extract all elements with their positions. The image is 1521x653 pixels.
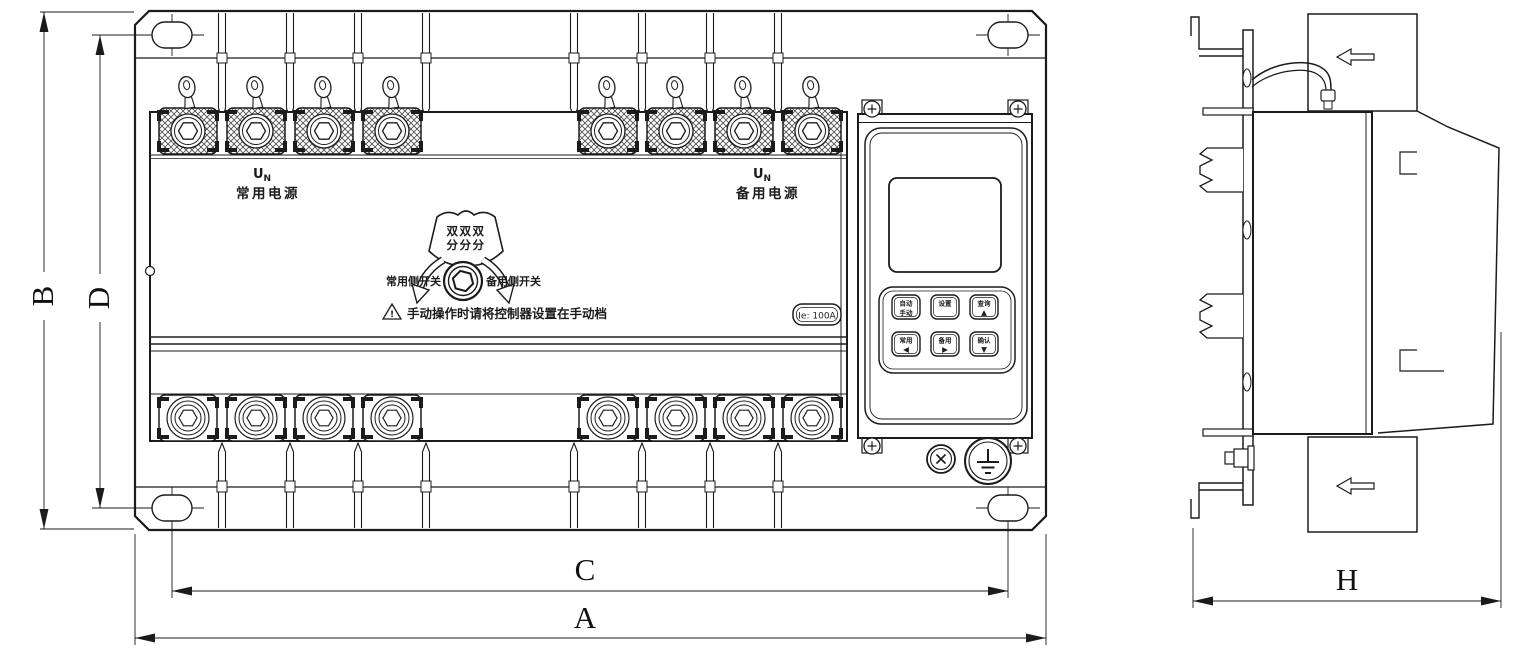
controller-button: 备用▶ <box>931 332 959 356</box>
bracket-bottom-arm <box>1191 483 1243 518</box>
bracket-bump <box>1243 69 1251 87</box>
controller-unit: 自动手动设置查询▲常用◀备用▶确认▼ <box>858 100 1032 484</box>
controller-button-label: ▼ <box>981 345 987 354</box>
mounting-slot <box>152 495 192 521</box>
mounting-slot <box>988 495 1028 521</box>
controller-button-label: 设置 <box>939 299 953 308</box>
mounting-slot <box>152 22 192 48</box>
controller-button: 查询▲ <box>970 295 998 319</box>
busbar-strip <box>639 13 646 119</box>
body-side-pin <box>146 267 155 276</box>
ground-terminal <box>965 438 1011 484</box>
controller-button-label: ◀ <box>903 345 909 354</box>
controller-button: 常用◀ <box>892 332 920 356</box>
mounting-slot <box>988 22 1028 48</box>
plate-edge-bottom <box>1203 429 1253 436</box>
controller-button-label: ▲ <box>981 308 987 317</box>
busbar-strip <box>219 13 226 119</box>
handle-plate-row1: 双双双 <box>446 224 486 238</box>
dim-label-mounting-width: C <box>575 552 596 587</box>
controller-panel <box>865 128 1027 424</box>
warning-text: 手动操作时请将控制器设置在手动档 <box>407 306 607 321</box>
busbar-strip <box>355 13 362 119</box>
busbar-strip <box>423 13 430 119</box>
controller-lcd-screen <box>889 178 1001 272</box>
bracket-top-arm <box>1191 17 1243 49</box>
dim-label-depth: H <box>1336 562 1358 597</box>
din-rail-clips <box>1200 148 1243 338</box>
ats-dimension-drawing: UN 常用电源 UN 备用电源 双双双 分分分 常用侧开 <box>0 0 1521 653</box>
bracket-bump <box>1243 373 1251 391</box>
controller-button-label: 查询 <box>978 299 992 308</box>
warning-mark: ! <box>390 310 394 320</box>
dim-label-overall-height: B <box>25 286 60 307</box>
side-view <box>1191 14 1499 532</box>
mounting-bolt <box>1225 446 1254 470</box>
controller-button-label: 自动 <box>900 299 914 308</box>
din-clip <box>1200 294 1243 338</box>
controller-button: 设置 <box>931 295 959 319</box>
handle-knob <box>444 262 482 300</box>
dim-label-mounting-height: D <box>81 287 116 309</box>
handle-right-switch-label: 备用侧开关 <box>485 274 541 288</box>
warning-note: ! 手动操作时请将控制器设置在手动档 <box>383 304 607 321</box>
dim-label-overall-width: A <box>574 600 597 635</box>
wire-connector <box>1321 90 1335 101</box>
controller-button-label: ▶ <box>942 345 948 354</box>
backup-power-name: 备用电源 <box>735 185 800 202</box>
din-clip <box>1200 148 1243 192</box>
controller-button-label: 常用 <box>900 336 913 345</box>
seal-screw <box>927 445 955 473</box>
controller-button-label: 备用 <box>938 336 952 345</box>
front-cover-profile <box>1378 111 1499 433</box>
busbar-strip <box>287 13 294 119</box>
controller-button-label: 手动 <box>900 308 914 317</box>
cover-hook <box>1400 152 1417 174</box>
controller-button: 确认▼ <box>970 332 998 356</box>
controller-button-label: 确认 <box>978 336 992 345</box>
busbar-strip <box>707 13 714 119</box>
busbar-strip <box>571 13 578 119</box>
busbar-strip <box>775 13 782 119</box>
device-body-side <box>1253 112 1372 434</box>
plate-edge-top <box>1203 108 1253 115</box>
bracket-bump <box>1243 221 1251 239</box>
front-view: UN 常用电源 UN 备用电源 双双双 分分分 常用侧开 <box>92 11 1046 530</box>
normal-power-name: 常用电源 <box>236 185 300 202</box>
controller-button: 自动手动 <box>892 295 920 319</box>
rating-badge-text: Ie: 100A <box>798 312 836 322</box>
handle-plate-row2: 分分分 <box>447 238 486 252</box>
handle-left-switch-label: 常用侧开关 <box>386 274 441 288</box>
cover-hook <box>1400 350 1444 371</box>
rating-badge: Ie: 100A <box>793 304 841 325</box>
